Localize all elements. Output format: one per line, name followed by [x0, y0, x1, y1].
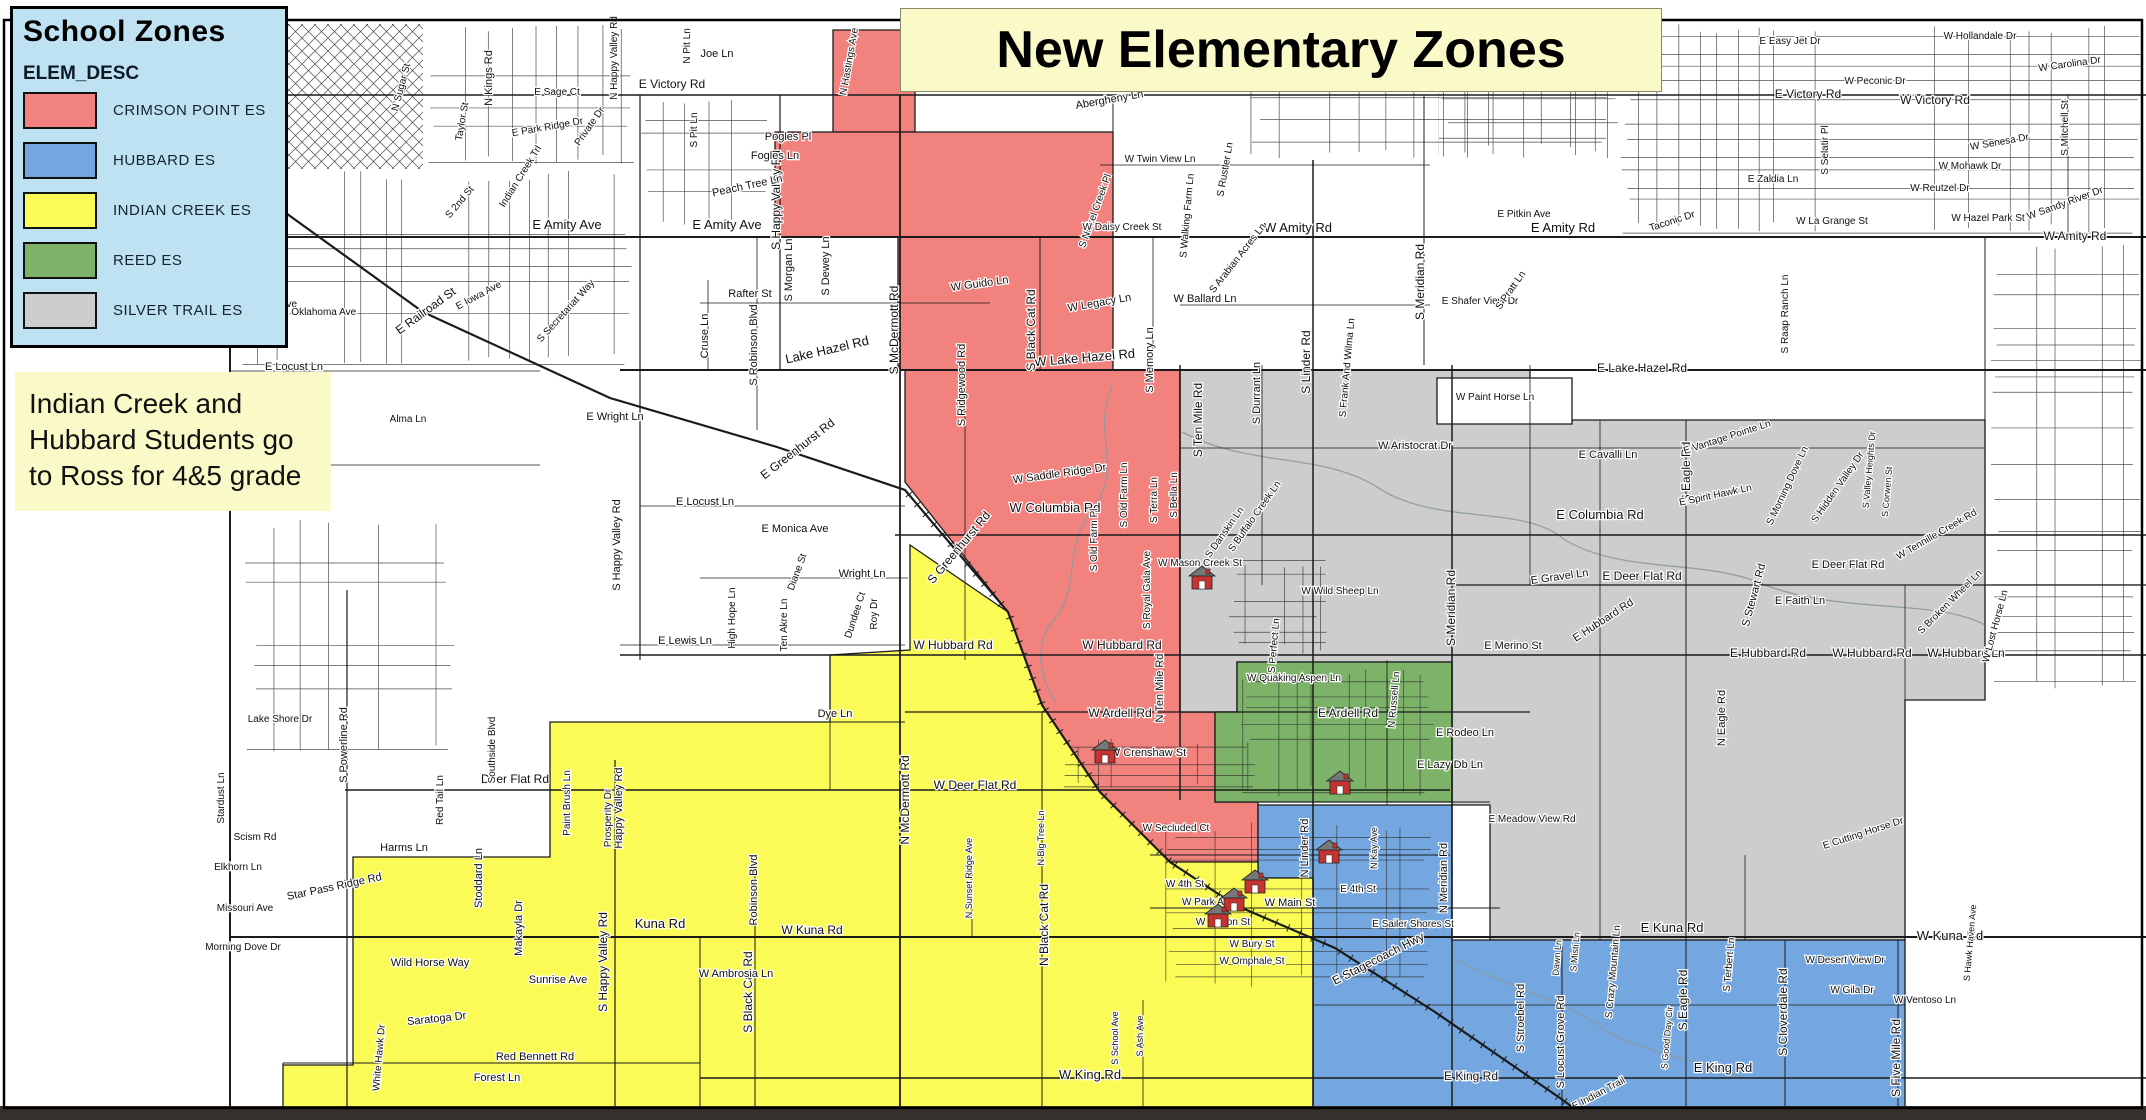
legend-title: School Zones: [23, 15, 275, 49]
road-label: S Ash Ave: [1135, 1016, 1145, 1057]
road-label: E King Rd: [1444, 1069, 1498, 1083]
map-canvas[interactable]: E Victory RdE Victory RdW Victory RdE Am…: [0, 0, 2146, 1120]
road-label: S Ten Mile Rd: [1191, 383, 1205, 457]
road-label: S Old Farm Pl: [1089, 509, 1100, 572]
road-label: Kuna Rd: [635, 916, 686, 931]
road-label: S Meridian Rd: [1413, 244, 1427, 320]
road-label: W Desert View Dr: [1805, 955, 1885, 966]
road-label: S Black Cat Rd: [741, 951, 755, 1032]
road-label: S Happy Valley Rd: [769, 150, 783, 250]
road-label: N Eagle Rd: [1716, 690, 1728, 746]
road-label: S Black Cat Rd: [1024, 289, 1038, 370]
road-label: W Columbia Rd: [1009, 500, 1100, 515]
legend-item: CRIMSON POINT ES: [23, 85, 275, 135]
road-label: S McDermott Rd: [887, 286, 901, 375]
road-label: Robinson Blvd: [748, 855, 760, 926]
road-label: N Sunset Ridge Ave: [964, 838, 974, 918]
road-label: S Morgan Ln: [783, 239, 795, 302]
road-label: N Pit Ln: [682, 28, 693, 64]
legend-item-label: HUBBARD ES: [113, 152, 216, 169]
road-label: S Ridgewood Rd: [956, 344, 968, 427]
road-label: E Meadow View Rd: [1488, 814, 1575, 825]
road-label: S Dewey Ln: [820, 236, 832, 295]
road-label: Missouri Ave: [217, 903, 274, 914]
road-label: W Aristocrat Dr: [1378, 440, 1452, 452]
legend-item: INDIAN CREEK ES: [23, 185, 275, 235]
legend-swatch: [23, 142, 97, 179]
road-label: Wild Horse Way: [391, 957, 470, 969]
road-label: Elkhorn Ln: [214, 862, 262, 873]
legend-field-name: ELEM_DESC: [23, 63, 275, 85]
road-label: W King Rd: [1059, 1067, 1121, 1082]
road-label: Dye Ln: [818, 708, 853, 720]
road-label: W Ardell Rd: [1088, 706, 1151, 720]
road-label: W Hazel Park St: [1951, 213, 2025, 224]
road-label: W Ballard Ln: [1174, 293, 1237, 305]
road-label: N Happy Valley Rd: [609, 16, 620, 100]
road-label: S Bella Ln: [1169, 472, 1180, 518]
road-label: E Pitkin Ave: [1497, 209, 1551, 220]
road-label: Red Bennett Rd: [496, 1051, 574, 1063]
road-label: W Peconic Dr: [1844, 76, 1906, 87]
road-label: E Kuna Rd: [1641, 920, 1704, 935]
road-label: Lake Shore Dr: [248, 714, 313, 725]
road-label: Cruse Ln: [699, 314, 711, 359]
road-label: W 4th St: [1166, 879, 1205, 890]
road-label: W Omphale St: [1219, 956, 1284, 967]
road-label: Forest Ln: [474, 1072, 520, 1084]
road-label: E Ardell Rd: [1318, 706, 1378, 720]
road-label: W Amity Rd: [2044, 229, 2107, 243]
road-label: E Zaldia Ln: [1748, 174, 1799, 185]
road-label: E Hubbard Rd: [1730, 646, 1806, 660]
road-label: S Linder Rd: [1299, 330, 1313, 393]
road-label: Ten Akre Ln: [779, 599, 790, 652]
road-label: Fogles Ln: [751, 150, 799, 162]
road-label: N Kay Ave: [1369, 827, 1379, 869]
road-label: W Crenshaw St: [1110, 747, 1186, 759]
road-label: N Black Cat Rd: [1037, 884, 1051, 966]
road-label: W Hubbard Rd: [1082, 638, 1161, 652]
road-label: Happy Valley Rd: [613, 767, 625, 848]
road-label: S Stroebel Rd: [1515, 984, 1527, 1052]
road-label: E Faith Ln: [1775, 595, 1825, 607]
road-label: N McDermott Rd: [898, 755, 912, 844]
road-label: W Paint Horse Ln: [1456, 392, 1534, 403]
road-label: N Big Tree Ln: [1036, 810, 1046, 865]
road-label: S Locust Grove Rd: [1555, 996, 1567, 1089]
road-label: W Gila Dr: [1830, 985, 1874, 996]
map-stage: E Victory RdE Victory RdW Victory RdE Am…: [0, 0, 2146, 1120]
road-label: S Meridian Rd: [1444, 570, 1458, 646]
road-label: S Cloverdale Rd: [1776, 968, 1790, 1055]
road-label: W Twin View Ln: [1125, 154, 1196, 165]
road-label: E Lake Hazel Rd: [1597, 361, 1687, 375]
road-label: E 4th St: [1340, 884, 1376, 895]
road-label: W Deer Flat Rd: [934, 778, 1017, 792]
legend-panel: School Zones ELEM_DESC CRIMSON POINT ESH…: [10, 6, 288, 348]
legend-swatch: [23, 192, 97, 229]
road-label: Stardust Ln: [216, 772, 227, 823]
road-label: E Cavalli Ln: [1579, 449, 1638, 461]
road-label: W Ambrosia Ln: [699, 968, 774, 980]
road-label: Alma Ln: [390, 414, 427, 425]
road-label: S Happy Valley Rd: [596, 912, 610, 1012]
road-label: N Linder Rd: [1299, 819, 1311, 878]
road-label: W Hollandale Dr: [1944, 31, 2017, 42]
legend-swatch: [23, 242, 97, 279]
road-label: Pogles Pl: [765, 131, 811, 143]
road-label: S Robinson Blvd: [748, 304, 760, 385]
road-label: Morning Dove Dr: [205, 942, 281, 953]
road-label: E Lewis Ln: [658, 635, 712, 647]
road-label: W Bury St: [1229, 939, 1274, 950]
road-label: W Mohawk Dr: [1939, 161, 2002, 172]
legend-item: SILVER TRAIL ES: [23, 285, 275, 335]
legend-item-label: CRIMSON POINT ES: [113, 102, 266, 119]
road-label: Red Tail Ln: [435, 775, 446, 825]
road-label: Scism Rd: [234, 832, 277, 843]
road-label: E Amity Rd: [1531, 220, 1595, 235]
road-label: Wright Ln: [839, 568, 886, 580]
zone-crimson-point-es: [775, 132, 1113, 237]
legend-items: CRIMSON POINT ESHUBBARD ESINDIAN CREEK E…: [23, 85, 275, 335]
road-label: E Columbia Rd: [1556, 507, 1643, 522]
road-label: High Hope Ln: [727, 587, 738, 648]
road-label: Rafter St: [728, 288, 771, 300]
legend-item: HUBBARD ES: [23, 135, 275, 185]
road-label: W Daisy Creek St: [1083, 222, 1162, 233]
road-label: E Lazy Db Ln: [1417, 759, 1483, 771]
road-label: E Victory Rd: [639, 77, 705, 91]
road-label: S Five Mile Rd: [1889, 1019, 1903, 1097]
road-label: S School Ave: [1110, 1011, 1120, 1064]
road-label: E Locust Ln: [676, 496, 734, 508]
road-label: S Eagle Rd: [1676, 970, 1690, 1031]
road-label: S Royal Gala Ave: [1142, 550, 1153, 629]
road-label: W Wild Sheep Ln: [1301, 586, 1378, 597]
road-label: S Raap Ranch Ln: [1780, 275, 1791, 354]
road-label: W Kuna Rd: [781, 923, 842, 937]
road-label: W Hubbard Rd: [913, 638, 992, 652]
road-label: Stoddard Ln: [473, 848, 485, 908]
road-label: E Amity Ave: [692, 217, 761, 232]
road-label: S Pit Ln: [689, 112, 700, 147]
road-label: E Easy Jet Dr: [1759, 36, 1821, 47]
road-label: W Hubbard Rd: [1832, 646, 1911, 660]
road-label: E Deer Flat Rd: [1602, 569, 1681, 583]
road-label: S Terra Ln: [1149, 477, 1160, 523]
road-label: W Main St: [1265, 897, 1316, 909]
road-label: W Victory Rd: [1900, 93, 1970, 107]
road-label: W La Grange St: [1796, 216, 1868, 227]
legend-swatch: [23, 92, 97, 129]
legend-item-label: SILVER TRAIL ES: [113, 302, 243, 319]
road-label: S Memory Ln: [1144, 327, 1156, 392]
road-label: E Amity Ave: [532, 217, 601, 232]
road-label: N Kings Rd: [483, 50, 495, 106]
map-title: New Elementary Zones: [900, 8, 1662, 92]
road-label: W Secluded Ct: [1143, 823, 1210, 834]
road-label: E Sailer Shores St: [1372, 919, 1454, 930]
road-label: W Reutzel Dr: [1910, 183, 1970, 194]
road-label: E Wright Ln: [586, 411, 643, 423]
road-label: S Happy Valley Rd: [611, 499, 623, 591]
legend-item: REED ES: [23, 235, 275, 285]
road-label: S Mitchell St: [2060, 100, 2071, 156]
road-label: S Durrant Ln: [1251, 362, 1263, 424]
road-label: E Sage Ct: [534, 87, 580, 98]
road-label: E Merino St: [1484, 640, 1541, 652]
road-label: Harms Ln: [380, 842, 428, 854]
road-label: S Selatir Pl: [1820, 125, 1831, 174]
road-label: Southside Blvd: [487, 717, 498, 784]
road-label: E Victory Rd: [1775, 87, 1841, 101]
road-label: W Amity Rd: [1264, 220, 1332, 235]
road-label: N Ten Mile Rd: [1154, 654, 1166, 723]
legend-swatch: [23, 292, 97, 329]
road-label: E King Rd: [1694, 1060, 1753, 1075]
road-label: S Old Farm Ln: [1119, 462, 1130, 527]
legend-item-label: INDIAN CREEK ES: [113, 202, 251, 219]
road-label: E Deer Flat Rd: [1812, 559, 1885, 571]
road-label: E Rodeo Ln: [1436, 727, 1494, 739]
legend-item-label: REED ES: [113, 252, 182, 269]
road-label: Paint Brush Ln: [562, 770, 573, 836]
road-label: W Quaking Aspen Ln: [1247, 673, 1341, 684]
note-box: Indian Creek and Hubbard Students go to …: [15, 372, 331, 511]
road-label: Prosperity Dr: [603, 788, 614, 847]
road-label: Makayla Dr: [513, 900, 525, 956]
road-label: E Monica Ave: [761, 523, 828, 535]
road-label: S Powerline Rd: [338, 707, 350, 783]
road-label: Joe Ln: [700, 48, 733, 60]
road-label: W Ventoso Ln: [1894, 995, 1956, 1006]
road-label: Sunrise Ave: [529, 974, 588, 986]
road-label: Roy Dr: [869, 598, 880, 630]
road-label: N Meridian Rd: [1438, 843, 1450, 913]
